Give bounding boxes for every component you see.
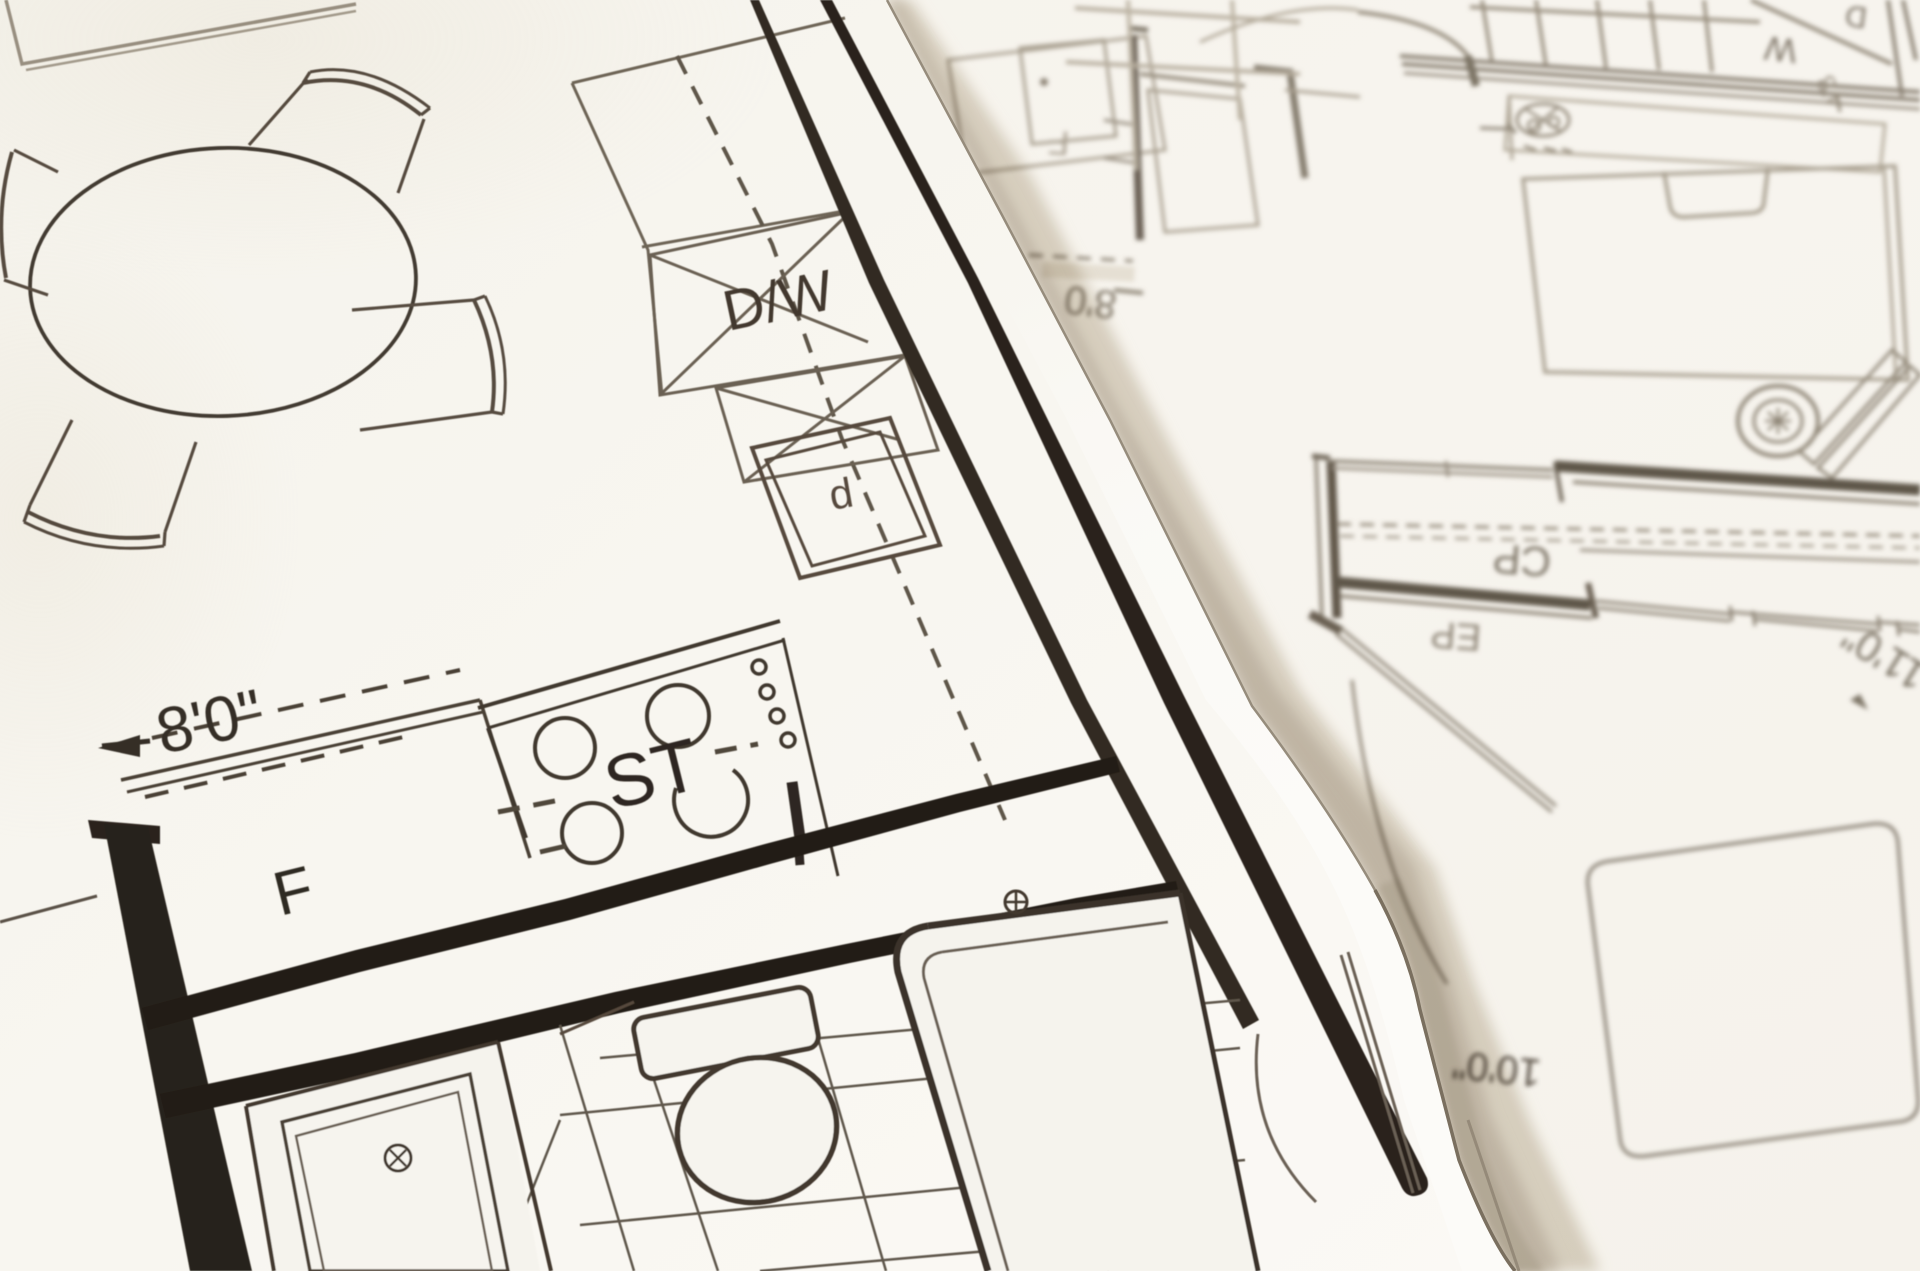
svg-text:D: D — [1843, 0, 1869, 34]
svg-text:W: W — [1762, 28, 1798, 70]
svg-text:CP: CP — [1491, 535, 1552, 586]
svg-text:F: F — [1047, 123, 1070, 162]
svg-text:EP: EP — [1429, 612, 1483, 657]
